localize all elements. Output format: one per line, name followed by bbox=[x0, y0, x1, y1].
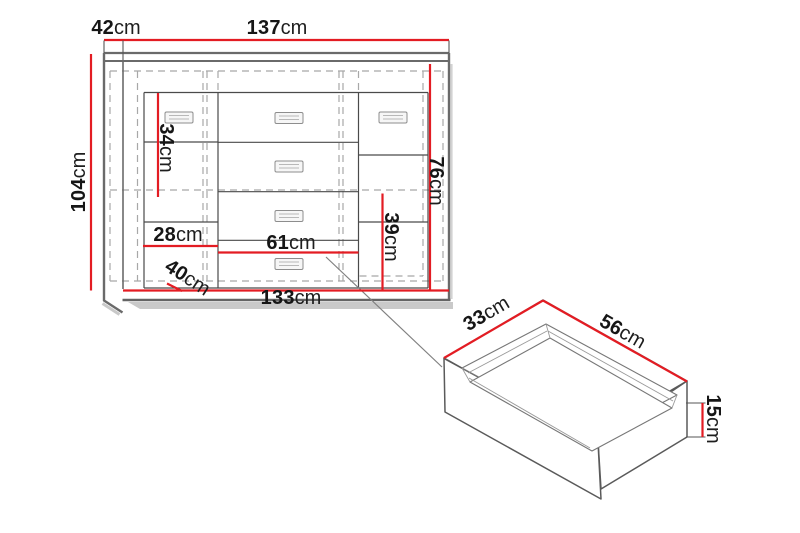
drawer-handle-2 bbox=[275, 161, 303, 172]
drawer-stack bbox=[218, 142, 359, 240]
door-handle-right bbox=[379, 112, 407, 123]
drawer-handle-3 bbox=[275, 211, 303, 222]
dim-label-drawer-width: 61cm bbox=[266, 232, 315, 254]
leader-line bbox=[326, 257, 442, 367]
drawer-handle-4 bbox=[275, 259, 303, 270]
furniture-dimension-diagram: 42cm 137cm 104cm 34cm 76cm 28cm 61cm 39c… bbox=[0, 0, 800, 533]
cabinet-left-side bbox=[104, 53, 123, 313]
dim-label-right-lower-gap: 39cm bbox=[380, 212, 402, 261]
cabinet-front-view bbox=[103, 53, 454, 315]
cabinet-top-panel bbox=[104, 53, 449, 61]
dim-label-bottom-width: 133cm bbox=[261, 287, 322, 309]
dim-top-line bbox=[104, 40, 449, 60]
dim-label-interior-height: 76cm bbox=[425, 156, 447, 205]
drawer-handle-1 bbox=[275, 113, 303, 124]
dim-label-drawer-height: 15cm bbox=[702, 394, 724, 443]
dim-label-top-width: 137cm bbox=[247, 17, 308, 39]
dim-label-left-compartment: 28cm bbox=[153, 224, 202, 246]
dim-label-bottom-depth: 40cm bbox=[161, 255, 214, 300]
door-handle-left bbox=[165, 112, 193, 123]
dim-label-height: 104cm bbox=[68, 152, 90, 213]
dim-label-top-depth: 42cm bbox=[91, 17, 140, 39]
dim-label-left-shelf-gap: 34cm bbox=[155, 123, 177, 172]
diagram-canvas: 42cm 137cm 104cm 34cm 76cm 28cm 61cm 39c… bbox=[0, 0, 800, 533]
